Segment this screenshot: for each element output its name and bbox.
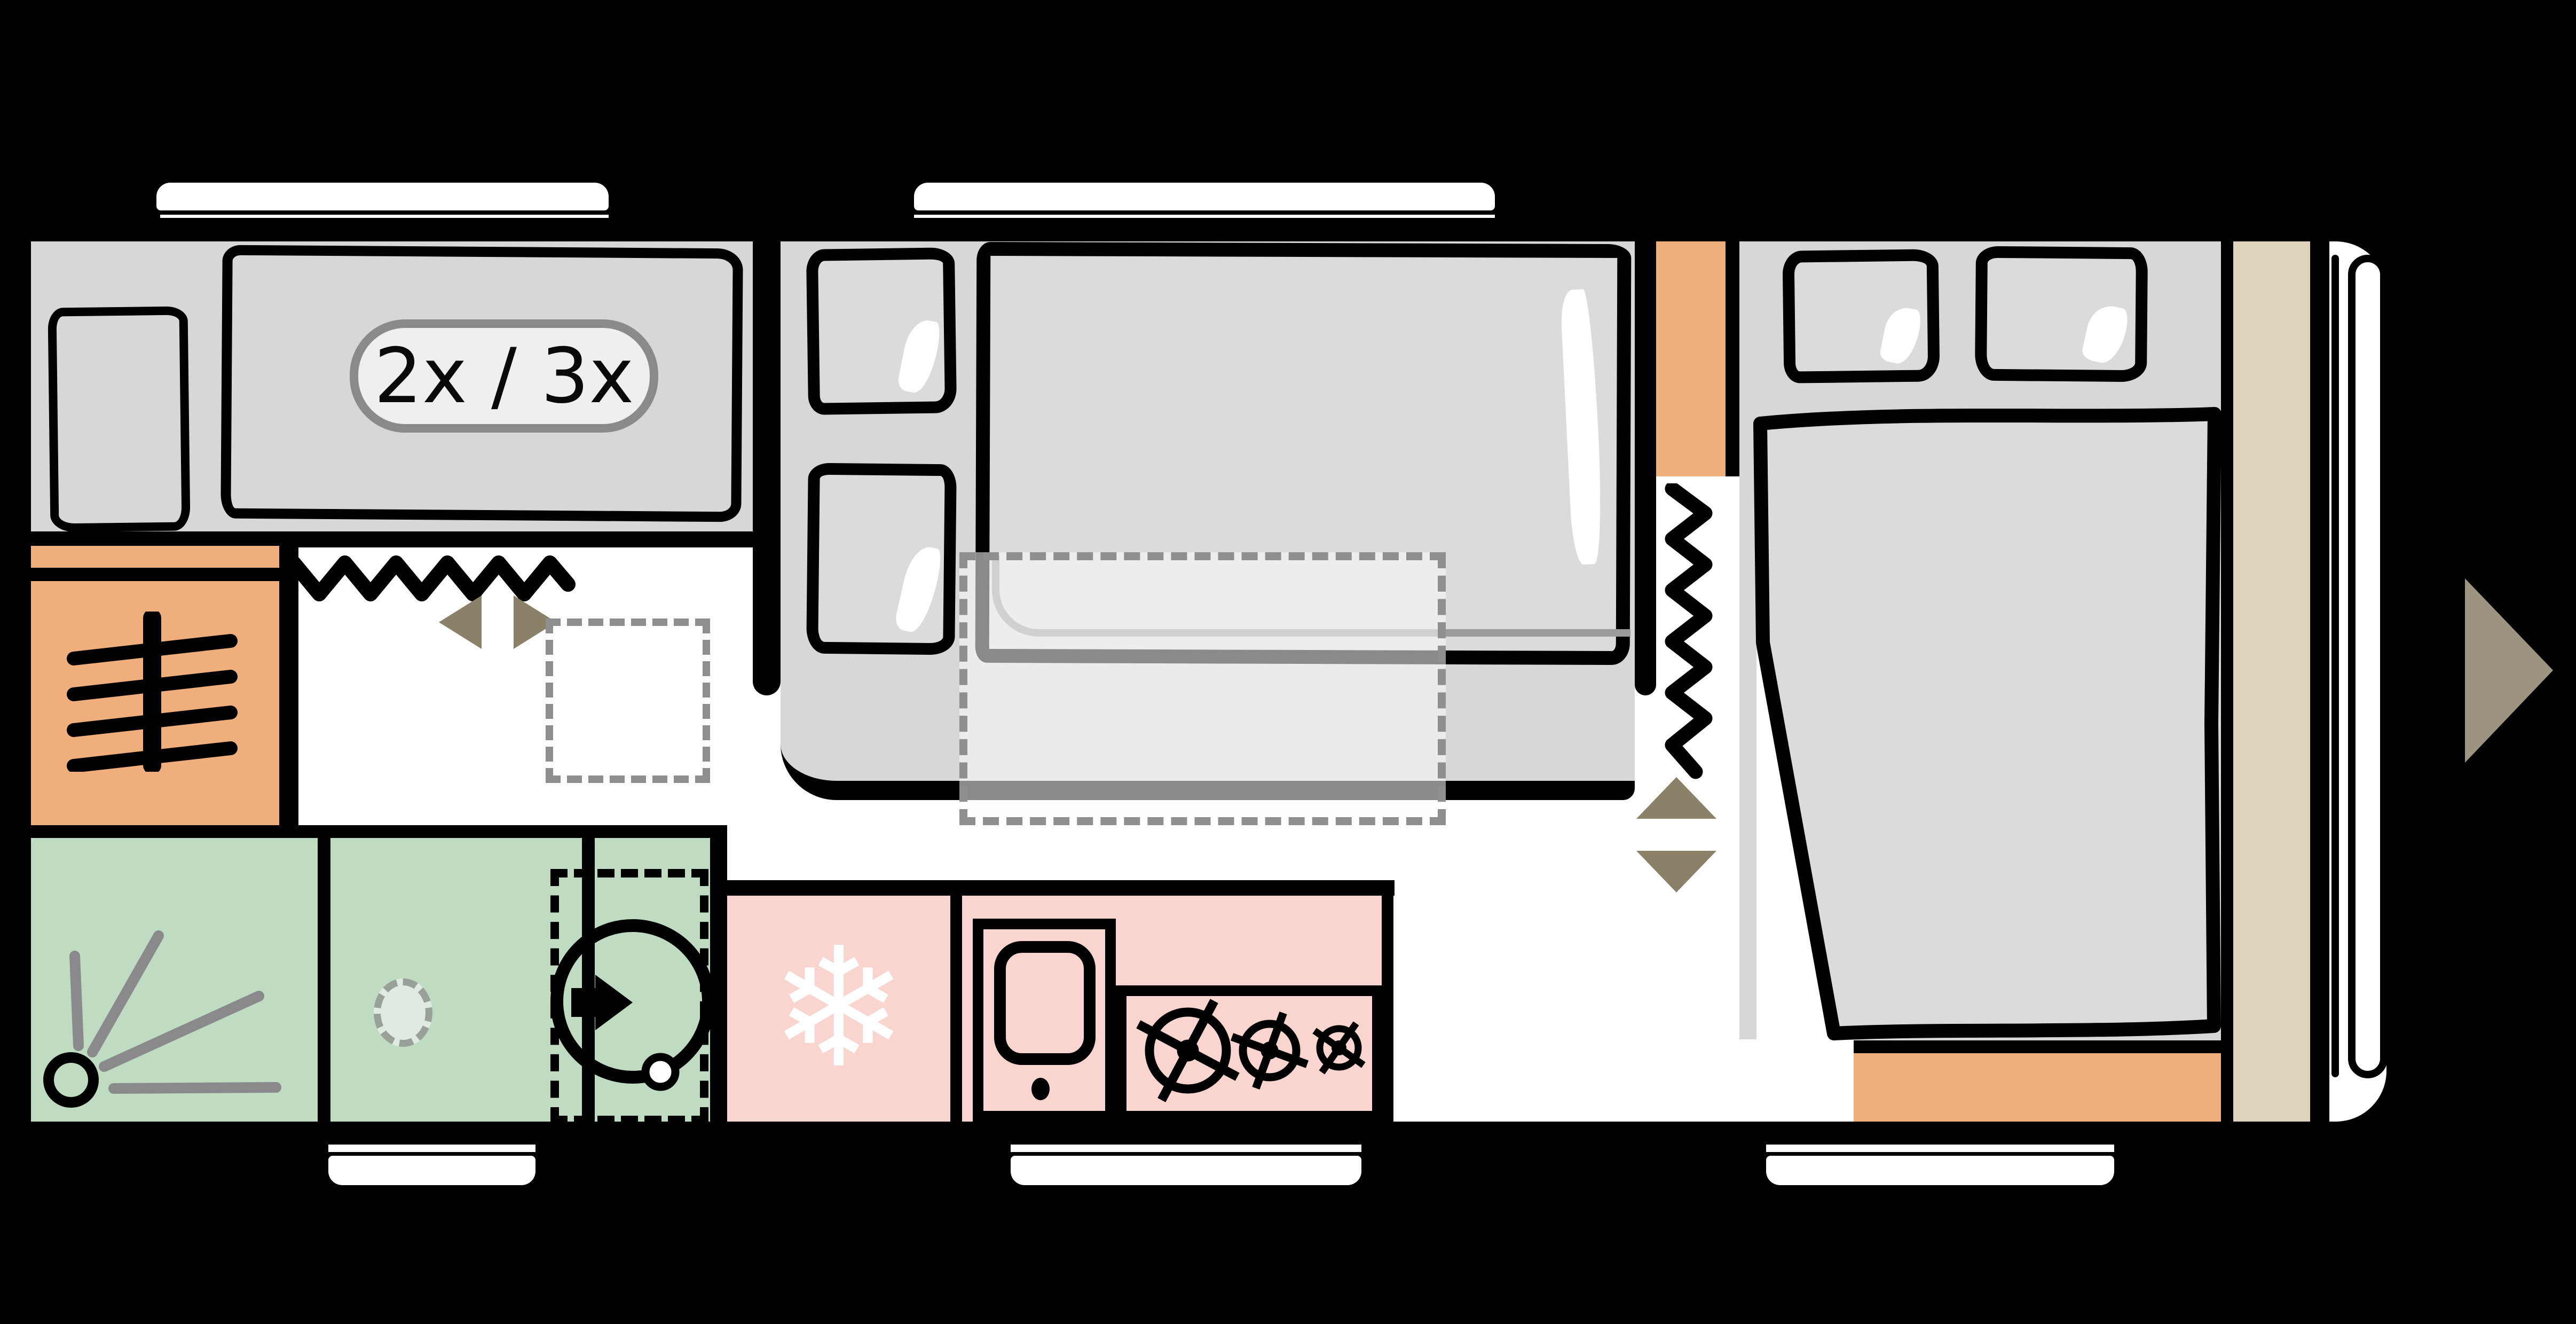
hob-burners-icon [1126, 989, 1377, 1117]
window-bottom-bedroom [1766, 1156, 2114, 1185]
window-bottom-kitchen-line [1011, 1145, 1361, 1152]
sink-basin [994, 941, 1096, 1065]
floor-drain-icon [374, 978, 432, 1047]
bedroom-mattress [1746, 403, 2229, 1049]
window-bottom-bath-line [328, 1145, 535, 1152]
wardrobe-front-wall-left [2221, 241, 2233, 1122]
floorplan-canvas: 2x / 3x [0, 0, 2576, 1324]
bunk-partition-right [1635, 241, 1656, 695]
fridge-wall [950, 896, 962, 1122]
bunk-pillow-top [806, 247, 957, 415]
dinette-seat [48, 306, 190, 532]
bunk-partition-left [753, 241, 781, 695]
window-bottom-kitchen [1011, 1156, 1361, 1185]
bedroom-walkway [1739, 1039, 1854, 1122]
dinette-front-wall [25, 531, 753, 547]
wall-zigzag-icon [1654, 483, 1723, 782]
wardrobe-front [2233, 241, 2310, 1122]
entry-door [2348, 255, 2388, 1078]
wardrobe-left-shelf [31, 546, 279, 568]
window-top-rear [156, 183, 609, 210]
window-top-middle [914, 183, 1495, 210]
galley-top-wall [710, 880, 1395, 896]
bedroom-pillow-right [1975, 246, 2148, 382]
shower-icon [40, 903, 296, 1116]
toilet-rotate-arrow [571, 975, 633, 1030]
berth-badge-label: 2x / 3x [374, 332, 634, 420]
berth-badge: 2x / 3x [350, 319, 658, 433]
wardrobe-front-wall-right [2310, 241, 2329, 1122]
bathroom-mid-wall [318, 838, 330, 1122]
sliding-door-arrow-left-icon [439, 596, 482, 649]
lift-bed-arrow-down-icon [1636, 851, 1716, 892]
dropdown-bed-dashed [959, 552, 1446, 825]
heater-icon [64, 612, 240, 772]
window-bottom-bedroom-line [1766, 1145, 2114, 1152]
toilet-icon [534, 900, 737, 1114]
bedroom-wardrobe-orange [1656, 241, 1726, 476]
bedroom-wardrobe-wall [1726, 241, 1739, 476]
underbed-storage [1854, 1040, 2221, 1122]
shower-tray-dashed [546, 618, 710, 783]
snowflake-icon: ❄ [727, 896, 950, 1122]
entry-door-line [2331, 255, 2339, 1077]
wardrobe-left-divider [31, 568, 279, 581]
bathroom-top-wall [25, 825, 727, 838]
entry-arrow-icon [2465, 578, 2553, 763]
bunk-pillow-bottom [806, 463, 957, 655]
lift-bed-arrow-up-icon [1636, 777, 1716, 819]
bedroom-pillow-left [1782, 249, 1940, 383]
sink-drain [1031, 1078, 1050, 1100]
window-bottom-bath [328, 1156, 535, 1185]
